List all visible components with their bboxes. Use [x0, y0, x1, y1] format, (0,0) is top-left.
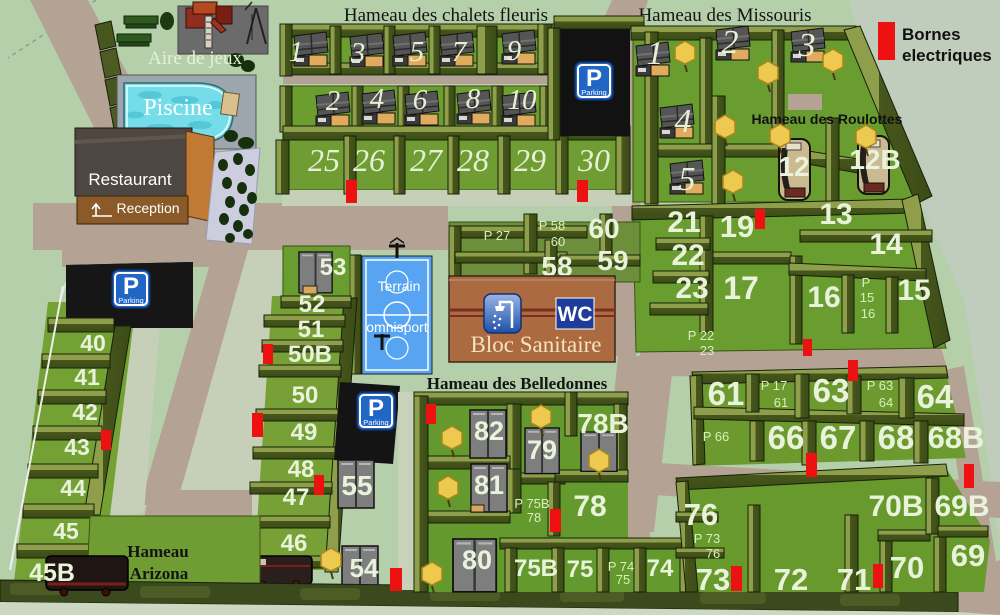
- svg-text:54: 54: [350, 553, 379, 583]
- svg-text:80: 80: [462, 545, 492, 575]
- svg-text:Aire de jeux: Aire de jeux: [148, 48, 242, 69]
- svg-text:45: 45: [53, 518, 79, 544]
- svg-text:17: 17: [723, 270, 759, 306]
- svg-text:Arizona: Arizona: [130, 564, 189, 583]
- svg-text:P 17: P 17: [761, 378, 788, 393]
- svg-text:Hameau des chalets fleuris: Hameau des chalets fleuris: [344, 5, 548, 26]
- svg-text:Terrain: Terrain: [378, 278, 421, 294]
- svg-text:Piscine: Piscine: [143, 95, 212, 121]
- svg-text:16: 16: [807, 281, 840, 314]
- svg-text:2: 2: [722, 24, 739, 61]
- svg-text:69: 69: [951, 538, 985, 573]
- svg-text:Hameau: Hameau: [127, 542, 188, 561]
- svg-text:8: 8: [466, 83, 481, 115]
- svg-text:26: 26: [353, 142, 385, 178]
- svg-text:51: 51: [298, 316, 325, 343]
- svg-text:1: 1: [647, 35, 664, 72]
- svg-text:60: 60: [588, 213, 619, 244]
- svg-text:50B: 50B: [288, 341, 332, 368]
- svg-text:21: 21: [667, 206, 700, 239]
- svg-text:76: 76: [684, 497, 718, 532]
- svg-text:43: 43: [64, 434, 90, 460]
- svg-text:30: 30: [577, 142, 610, 178]
- svg-text:Hameau des Belledonnes: Hameau des Belledonnes: [427, 374, 608, 393]
- svg-text:67: 67: [820, 419, 857, 456]
- svg-text:78: 78: [527, 510, 541, 525]
- svg-text:29: 29: [514, 142, 546, 178]
- svg-text:28: 28: [457, 142, 489, 178]
- svg-text:P 58: P 58: [539, 218, 566, 233]
- svg-text:P 27: P 27: [484, 228, 511, 243]
- svg-text:63: 63: [813, 372, 850, 409]
- svg-text:10: 10: [508, 84, 538, 116]
- svg-text:12: 12: [778, 151, 809, 182]
- svg-text:22: 22: [671, 239, 704, 272]
- svg-text:70B: 70B: [868, 490, 923, 523]
- svg-text:69B: 69B: [934, 490, 989, 523]
- svg-text:16: 16: [861, 306, 875, 321]
- svg-text:12B: 12B: [849, 144, 900, 175]
- svg-text:79: 79: [527, 435, 557, 465]
- svg-text:70: 70: [890, 550, 924, 585]
- svg-text:WC: WC: [558, 303, 593, 326]
- svg-text:75: 75: [616, 572, 630, 587]
- svg-text:64: 64: [917, 378, 954, 415]
- svg-text:74: 74: [647, 555, 674, 582]
- svg-text:Bornes: Bornes: [902, 25, 961, 44]
- svg-text:27: 27: [410, 142, 444, 178]
- svg-text:Restaurant: Restaurant: [88, 170, 171, 189]
- svg-text:14: 14: [869, 228, 903, 261]
- svg-text:82: 82: [474, 416, 504, 446]
- svg-text:75: 75: [567, 556, 594, 583]
- svg-text:7: 7: [452, 36, 468, 68]
- svg-text:Hameau des Missouris: Hameau des Missouris: [638, 5, 811, 26]
- svg-text:P 73: P 73: [694, 531, 721, 546]
- svg-text:4: 4: [370, 83, 385, 115]
- svg-text:68: 68: [878, 419, 915, 456]
- svg-text:15: 15: [897, 274, 930, 307]
- svg-text:61: 61: [708, 375, 745, 412]
- svg-text:5: 5: [679, 161, 696, 198]
- svg-text:71: 71: [837, 562, 871, 597]
- svg-text:68B: 68B: [928, 420, 985, 455]
- svg-text:72: 72: [774, 562, 808, 597]
- svg-text:3: 3: [798, 27, 816, 64]
- svg-text:44: 44: [60, 475, 86, 501]
- svg-text:Bloc Sanitaire: Bloc Sanitaire: [471, 332, 602, 357]
- svg-text:Reception: Reception: [116, 200, 179, 216]
- svg-text:78B: 78B: [577, 408, 628, 439]
- svg-text:64: 64: [879, 395, 893, 410]
- svg-text:52: 52: [299, 291, 326, 318]
- svg-text:2: 2: [326, 85, 341, 117]
- svg-text:19: 19: [720, 209, 754, 244]
- svg-text:25: 25: [308, 142, 340, 178]
- svg-text:5: 5: [410, 36, 425, 68]
- svg-text:1: 1: [289, 36, 304, 68]
- svg-text:75B: 75B: [514, 555, 558, 582]
- svg-text:electriques: electriques: [902, 46, 992, 65]
- svg-text:Hameau des Roulottes: Hameau des Roulottes: [752, 111, 903, 127]
- svg-text:45B: 45B: [29, 559, 75, 587]
- svg-text:3: 3: [350, 37, 366, 69]
- svg-text:48: 48: [288, 456, 315, 483]
- svg-text:P 63: P 63: [867, 378, 894, 393]
- svg-text:59: 59: [597, 245, 628, 276]
- svg-text:6: 6: [413, 84, 428, 116]
- svg-text:73: 73: [696, 562, 730, 597]
- svg-text:P: P: [862, 275, 871, 290]
- svg-text:76: 76: [706, 546, 720, 561]
- svg-text:61: 61: [774, 395, 788, 410]
- svg-text:81: 81: [474, 470, 504, 500]
- svg-text:13: 13: [819, 198, 852, 231]
- svg-text:40: 40: [80, 330, 106, 356]
- svg-text:55: 55: [341, 470, 372, 501]
- svg-text:46: 46: [281, 530, 308, 557]
- svg-text:66: 66: [768, 419, 805, 456]
- svg-text:23: 23: [700, 343, 714, 358]
- svg-text:53: 53: [320, 254, 347, 281]
- svg-text:49: 49: [291, 419, 318, 446]
- svg-text:23: 23: [675, 272, 708, 305]
- svg-text:41: 41: [74, 364, 100, 390]
- svg-text:78: 78: [573, 490, 606, 523]
- svg-text:50: 50: [292, 382, 319, 409]
- svg-text:4: 4: [675, 103, 692, 140]
- svg-text:47: 47: [283, 484, 310, 511]
- svg-text:9: 9: [507, 35, 522, 67]
- svg-text:P 22: P 22: [688, 328, 715, 343]
- svg-text:omnisport: omnisport: [366, 319, 428, 335]
- svg-text:60: 60: [551, 234, 565, 249]
- svg-text:P 66: P 66: [703, 429, 730, 444]
- svg-text:42: 42: [72, 399, 98, 425]
- svg-text:15: 15: [860, 290, 874, 305]
- svg-text:P 75B: P 75B: [514, 496, 549, 511]
